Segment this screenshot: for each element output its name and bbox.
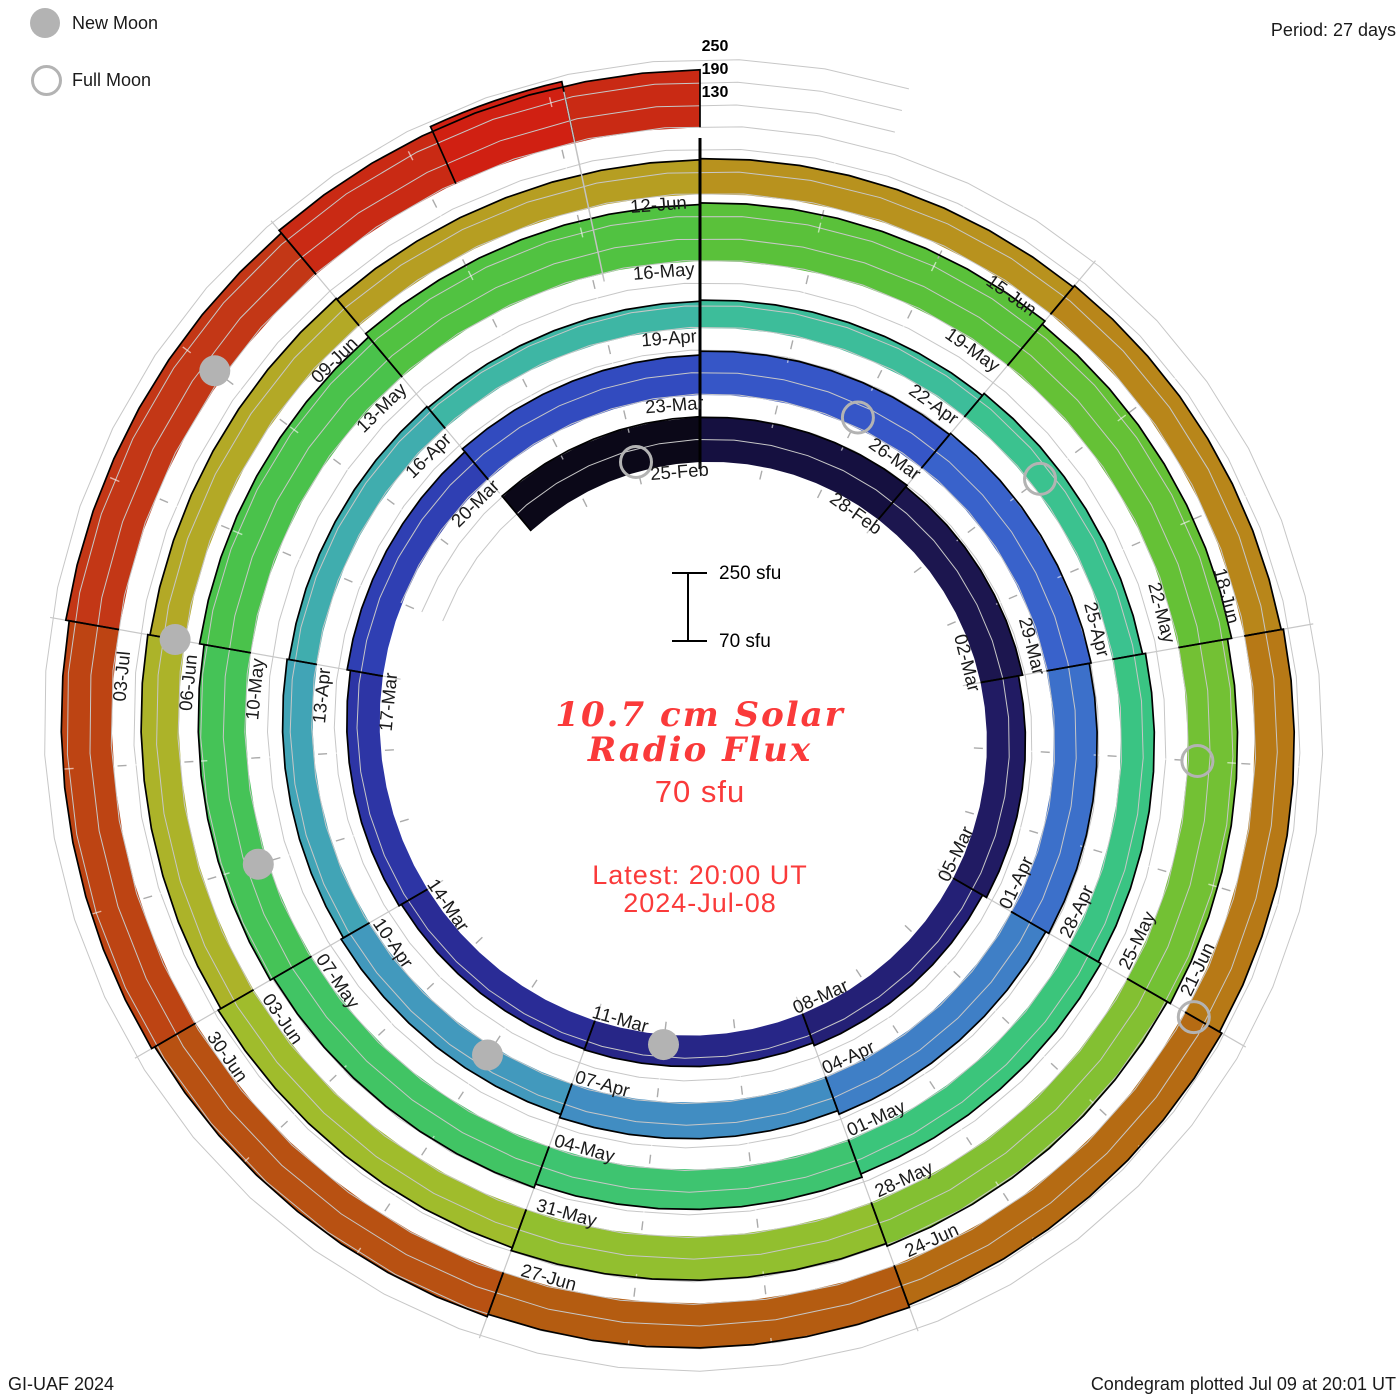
legend-new-moon-label: New Moon xyxy=(72,13,158,34)
band-minor-tick xyxy=(331,753,341,754)
minor-tick xyxy=(583,499,587,507)
minor-tick xyxy=(1003,1193,1008,1201)
minor-tick xyxy=(553,439,557,447)
band-minor-tick xyxy=(901,322,905,331)
new-moon-marker-08-Apr xyxy=(472,1040,503,1071)
band-minor-tick xyxy=(959,1126,964,1134)
date-label-13-Apr: 13-Apr xyxy=(308,667,334,724)
band-minor-tick xyxy=(565,162,567,172)
band-minor-tick xyxy=(643,1207,644,1217)
minor-tick xyxy=(283,552,291,556)
minor-tick xyxy=(893,1025,898,1033)
minor-tick xyxy=(1129,407,1136,412)
minor-tick xyxy=(760,471,762,480)
band-minor-tick xyxy=(466,1080,471,1088)
minor-tick xyxy=(387,499,394,504)
band-minor-tick xyxy=(1227,763,1237,764)
minor-tick xyxy=(330,1075,337,1081)
minor-tick xyxy=(281,1121,288,1127)
chart-title-line2: Radio Flux xyxy=(588,733,812,767)
full-moon-icon xyxy=(31,65,62,96)
scale-bar-bottom-cap xyxy=(672,640,707,642)
minor-tick xyxy=(657,1088,658,1097)
minor-tick xyxy=(1132,542,1140,546)
band-minor-tick xyxy=(1160,759,1170,760)
minor-tick xyxy=(818,490,822,498)
scale-bar-bottom-label: 70 sfu xyxy=(719,631,771,653)
minor-tick xyxy=(118,765,127,766)
minor-tick xyxy=(634,1288,635,1297)
minor-tick xyxy=(765,1285,766,1294)
minor-tick xyxy=(1100,1109,1107,1115)
minor-tick xyxy=(160,499,168,503)
minor-tick xyxy=(791,340,793,349)
date-label-23-Mar: 23-Mar xyxy=(644,392,704,418)
minor-tick xyxy=(344,579,352,583)
band-minor-tick xyxy=(962,202,966,211)
band-minor-tick xyxy=(356,584,365,588)
flux-bar-27-Jun xyxy=(155,1023,504,1316)
band-minor-tick xyxy=(64,768,74,769)
baseline-flux-label: 70 sfu xyxy=(655,774,745,810)
minor-tick xyxy=(974,748,983,749)
chart-title-line1: 10.7 cm Solar xyxy=(555,698,844,732)
minor-tick xyxy=(642,1221,643,1230)
minor-tick xyxy=(1029,831,1038,834)
minor-tick xyxy=(741,1086,742,1095)
minor-tick xyxy=(806,275,808,284)
minor-tick xyxy=(458,1092,463,1100)
minor-tick xyxy=(280,419,287,424)
new-moon-icon xyxy=(30,8,60,38)
minor-tick xyxy=(947,622,955,626)
minor-tick xyxy=(775,406,777,415)
minor-tick xyxy=(562,150,564,159)
minor-tick xyxy=(1002,1017,1009,1023)
date-label-17-Mar: 17-Mar xyxy=(375,672,402,732)
date-label-19-Apr: 19-Apr xyxy=(640,325,697,350)
minor-tick xyxy=(608,345,610,354)
band-minor-tick xyxy=(1027,751,1037,752)
minor-tick xyxy=(221,525,229,529)
minor-tick xyxy=(1158,869,1167,872)
minor-tick xyxy=(1070,569,1078,573)
band-minor-tick xyxy=(1094,755,1104,756)
minor-tick xyxy=(734,1019,735,1028)
date-label-12-Jun: 12-Jun xyxy=(629,192,687,217)
scale-bar-top-label: 250 sfu xyxy=(719,563,781,585)
band-minor-tick xyxy=(398,507,406,513)
minor-tick xyxy=(930,1081,935,1089)
flux-bar-08-Jul xyxy=(431,82,575,184)
minor-tick xyxy=(1108,756,1117,757)
minor-tick xyxy=(385,750,394,751)
band-minor-tick xyxy=(197,761,207,762)
minor-tick xyxy=(757,1219,758,1228)
minor-tick xyxy=(1051,1063,1058,1069)
minor-tick xyxy=(318,754,327,755)
minor-tick xyxy=(406,605,414,609)
band-minor-tick xyxy=(922,1070,927,1078)
radial-axis-label-130: 130 xyxy=(698,84,732,102)
minor-tick xyxy=(650,1155,651,1164)
minor-tick xyxy=(965,811,974,814)
plotted-timestamp-label: Condegram plotted Jul 09 at 20:01 UT xyxy=(1091,1374,1396,1395)
band-minor-tick xyxy=(1294,767,1304,768)
band-minor-tick xyxy=(264,757,274,758)
minor-tick xyxy=(878,370,882,378)
date-label-25-Feb: 25-Feb xyxy=(649,459,709,485)
minor-tick xyxy=(749,1152,750,1161)
minor-tick xyxy=(251,758,260,759)
date-label-06-Jun: 06-Jun xyxy=(175,653,201,711)
minor-tick xyxy=(967,1137,972,1145)
band-minor-tick xyxy=(755,1205,756,1215)
band-minor-tick xyxy=(885,1014,890,1022)
minor-tick xyxy=(1009,595,1017,599)
band-minor-tick xyxy=(130,765,140,766)
minor-tick xyxy=(400,819,409,822)
credit-label: GI-UAF 2024 xyxy=(8,1374,114,1395)
period-label: Period: 27 days xyxy=(1271,20,1396,41)
minor-tick xyxy=(968,527,975,532)
new-moon-marker-06-Jun xyxy=(160,624,191,655)
date-label-16-May: 16-May xyxy=(632,258,696,284)
minor-tick xyxy=(1241,764,1250,765)
minor-tick xyxy=(441,539,448,544)
minor-tick xyxy=(908,310,912,318)
minor-tick xyxy=(493,319,497,327)
minor-tick xyxy=(1041,752,1050,753)
scale-bar-top-cap xyxy=(672,572,707,574)
new-moon-marker-10-Mar xyxy=(648,1029,679,1060)
minor-tick xyxy=(184,762,193,763)
minor-tick xyxy=(336,838,345,841)
minor-tick xyxy=(378,1029,385,1035)
minor-tick xyxy=(1094,850,1103,853)
new-moon-marker-08-May xyxy=(243,849,274,880)
latest-time-label: Latest: 20:00 UT xyxy=(592,861,808,889)
radial-axis-label-190: 190 xyxy=(698,61,732,79)
band-minor-tick xyxy=(659,1074,660,1084)
latest-date-label: 2024-Jul-08 xyxy=(623,889,777,917)
band-minor-tick xyxy=(651,1141,652,1151)
minor-tick xyxy=(333,459,340,464)
minor-tick xyxy=(208,877,217,880)
radial-axis-label-250: 250 xyxy=(698,38,732,56)
band-minor-tick xyxy=(748,1138,749,1148)
minor-tick xyxy=(1193,516,1201,520)
band-minor-tick xyxy=(502,1024,507,1032)
date-label-03-Jul: 03-Jul xyxy=(108,650,134,702)
band-minor-tick xyxy=(344,467,352,473)
minor-tick xyxy=(385,1204,390,1212)
minor-tick xyxy=(433,200,437,208)
minor-tick xyxy=(1075,447,1082,452)
new-moon-marker-05-Jul xyxy=(199,355,230,386)
minor-tick xyxy=(476,937,483,943)
minor-tick xyxy=(1222,888,1231,891)
minor-tick xyxy=(914,567,921,572)
minor-tick xyxy=(954,971,961,977)
minor-tick xyxy=(523,379,527,387)
legend-full-moon-label: Full Moon xyxy=(72,70,151,91)
minor-tick xyxy=(427,983,434,989)
scale-bar-line xyxy=(687,573,689,641)
flux-bar-21-Jun xyxy=(894,1012,1222,1305)
minor-tick xyxy=(143,896,152,899)
condegram-page: 25-Feb28-Feb02-Mar05-Mar08-Mar11-Mar14-M… xyxy=(0,0,1400,1400)
minor-tick xyxy=(422,1148,427,1156)
minor-tick xyxy=(532,980,537,988)
minor-tick xyxy=(624,410,626,419)
minor-tick xyxy=(905,925,912,931)
band-minor-tick xyxy=(740,1072,741,1082)
minor-tick xyxy=(593,280,595,289)
minor-tick xyxy=(856,970,861,978)
band-minor-tick xyxy=(236,387,244,393)
